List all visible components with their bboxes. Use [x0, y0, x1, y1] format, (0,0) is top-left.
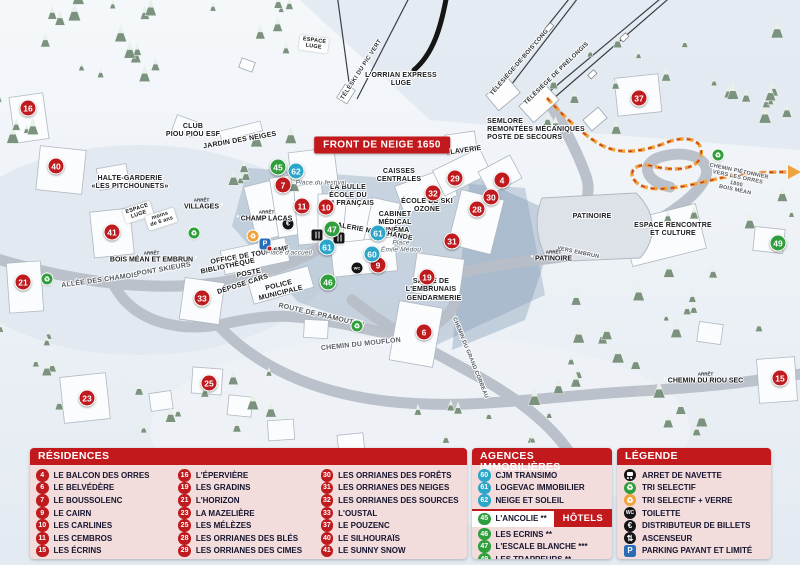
legend-key-label: ARRET DE NAVETTE [642, 471, 722, 480]
legend-item-number: 11 [36, 532, 49, 545]
map-marker-19: 19 [419, 269, 436, 286]
legend-item-number: 40 [321, 532, 334, 545]
map-label: CABINET MÉDICAL [378, 211, 411, 227]
map-marker-10: 10 [318, 199, 335, 216]
legend-item: 11LES CEMBROS [36, 532, 178, 545]
legend-item-number: 60 [478, 469, 491, 482]
legend-item: 15LES ÉCRINS [36, 545, 178, 558]
legend-key-item: ARRET DE NAVETTE [623, 469, 767, 482]
legend-item-label: LA MAZELIÈRE [196, 509, 255, 518]
legend-item-label: L'ANCOLIE ** [496, 514, 547, 523]
map-marker-15: 15 [772, 370, 789, 387]
legend-key-label: TRI SELECTIF + VERRE [642, 496, 732, 505]
map-marker-30: 30 [483, 189, 500, 206]
legend-key-item: €DISTRIBUTEUR DE BILLETS [623, 519, 767, 532]
parking-icon: P [260, 239, 271, 250]
bus-icon [624, 469, 636, 481]
legend-item: 21L'HORIZON [178, 494, 320, 507]
legend-item: 29LES ORRIANES DES CIMES [178, 545, 320, 558]
legend-item: 41LE SUNNY SNOW [321, 545, 463, 558]
legend-item: 62NEIGE ET SOLEIL [478, 494, 608, 507]
legend-item-label: LE CAIRN [54, 509, 92, 518]
map-marker-21: 21 [15, 274, 32, 291]
map-label: GENDARMERIE [407, 295, 462, 303]
toilet-icon: WC [352, 263, 363, 274]
legend-item-number: 29 [178, 545, 191, 558]
legend-item: 30LES ORRIANES DES FORÊTS [321, 469, 463, 482]
legend-item-label: LE BOUSSOLENC [54, 496, 123, 505]
legend-item: 33L'OUSTAL [321, 507, 463, 520]
map-label: Place Émile Médou [381, 240, 421, 255]
parking-icon: P [624, 545, 636, 557]
front-de-neige-banner: FRONT DE NEIGE 1650 [314, 137, 450, 154]
residences-column: 16L'ÉPERVIÈRE19LES GRADINS21L'HORIZON23L… [178, 469, 320, 557]
map-label: CAISSES CENTRALES [377, 168, 422, 184]
map-marker-60: 60 [364, 246, 381, 263]
bus-stop-name: CHAMP LACAS [241, 215, 293, 222]
legend-item-number: 21 [178, 494, 191, 507]
legend-item-label: LE POUZENC [338, 521, 390, 530]
map-marker-41: 41 [104, 224, 121, 241]
legend-item-label: LE SILHOURAÏS [338, 534, 400, 543]
residences-column: 30LES ORRIANES DES FORÊTS31LES ORRIANES … [321, 469, 463, 557]
legend-item: 6LE BELVÉDÈRE [36, 482, 178, 495]
map-marker-46: 46 [320, 274, 337, 291]
legend-item-number: 33 [321, 507, 334, 520]
legend-item: 32LES ORRIANES DES SOURCES [321, 494, 463, 507]
legend-item-number: 41 [321, 545, 334, 558]
recycle-glass-icon: ♻ [248, 231, 259, 242]
map-marker-6: 6 [416, 324, 433, 341]
bus-stop-bois-m-an-et-embrun: ARRÊTBOIS MÉAN ET EMBRUN [110, 251, 196, 263]
legend-item-number: 15 [36, 545, 49, 558]
bus-stop-name: BOIS MÉAN ET EMBRUN [110, 256, 193, 263]
panel-agences-title: AGENCES IMMOBILIÈRES [472, 448, 612, 465]
map-label: Place d'accueil [266, 249, 312, 256]
bus-stop-villages: ARRÊTVILLAGES [184, 198, 222, 210]
legend-item-number: 30 [321, 469, 334, 482]
legend-key-label: TOILETTE [642, 509, 681, 518]
legend-item-label: LES CEMBROS [54, 534, 113, 543]
legend-item-number: 46 [478, 528, 491, 541]
legend-item-number: 49 [478, 553, 491, 559]
legend-item-label: LES MÉLÈZES [196, 521, 252, 530]
legend-item-label: LES ORRIANES DES NEIGES [338, 483, 449, 492]
bus-stop-name: VILLAGES [184, 203, 219, 210]
legend-item-label: LOGEVAC IMMOBILIER [496, 483, 585, 492]
legend-item: 16L'ÉPERVIÈRE [178, 469, 320, 482]
recycle-icon: ♻ [713, 150, 724, 161]
legend-item-label: LES ORRIANES DES SOURCES [338, 496, 458, 505]
map-marker-4: 4 [494, 172, 511, 189]
legend-item-label: LE SUNNY SNOW [338, 546, 405, 555]
map-marker-37: 37 [631, 90, 648, 107]
legend-item: 49LES TRAPPEURS ** [478, 553, 608, 559]
recycle-glass-icon: ♻ [624, 494, 636, 506]
legend-item-label: LES CARLINES [54, 521, 113, 530]
legend-item-number: 32 [321, 494, 334, 507]
map-marker-61: 61 [319, 239, 336, 256]
euro-icon: € [624, 520, 636, 532]
toilet-icon: WC [624, 507, 636, 519]
legend-item: 9LE CAIRN [36, 507, 178, 520]
map-marker-7: 7 [275, 177, 292, 194]
legend-item: 10LES CARLINES [36, 519, 178, 532]
legend-item: 19LES GRADINS [178, 482, 320, 495]
legend-item-number: 10 [36, 519, 49, 532]
legend-item-number: 19 [178, 482, 191, 495]
legend-item: 7LE BOUSSOLENC [36, 494, 178, 507]
map-marker-33: 33 [194, 290, 211, 307]
recycle-icon: ♻ [42, 274, 53, 285]
panel-residences: RÉSIDENCES 4LE BALCON DES ORRES6LE BELVÉ… [30, 448, 467, 559]
map-marker-47: 47 [324, 221, 341, 238]
legend-item: 47L'ESCALE BLANCHE *** [478, 540, 608, 553]
map-marker-16: 16 [20, 100, 37, 117]
legend-item-label: LES ORRIANES DES FORÊTS [338, 471, 451, 480]
legend-item-label: L'OUSTAL [338, 509, 377, 518]
legend-key-label: DISTRIBUTEUR DE BILLETS [642, 521, 750, 530]
legend-item: 61LOGEVAC IMMOBILIER [478, 482, 608, 495]
recycle-icon: ♻ [189, 228, 200, 239]
legend-item-label: LES ÉCRINS [54, 546, 102, 555]
legend-key-item: ♻TRI SELECTIF + VERRE [623, 494, 767, 507]
legend-item: 28LES ORRIANES DES BLÉS [178, 532, 320, 545]
legend-item: 4LE BALCON DES ORRES [36, 469, 178, 482]
legend-item: 45L'ANCOLIE ** [472, 512, 554, 525]
legend-item-label: L'HORIZON [196, 496, 240, 505]
legend-item-label: LE BELVÉDÈRE [54, 483, 115, 492]
legend-item-label: L'ESCALE BLANCHE *** [496, 542, 588, 551]
panel-legende: LÉGENDE ARRET DE NAVETTE♻TRI SELECTIF♻TR… [617, 448, 771, 559]
resort-map: FRONT DE NEIGE 1650 TÉLÉSKI DU PIC VERTT… [0, 0, 800, 565]
map-marker-45: 45 [270, 159, 287, 176]
elevator-icon: ⇅ [624, 532, 636, 544]
legend-item-label: LE BALCON DES ORRES [54, 471, 150, 480]
legend-key-label: ASCENSEUR [642, 534, 692, 543]
legend-item: 37LE POUZENC [321, 519, 463, 532]
legend-item-label: CJM TRANSIMO [496, 471, 558, 480]
legend-item-number: 45 [478, 513, 491, 526]
map-marker-61: 61 [370, 225, 387, 242]
legend-item-number: 47 [478, 540, 491, 553]
map-label: CLUB PIOU PIOU ESF [166, 123, 220, 139]
legend-key-label: PARKING PAYANT ET LIMITÉ [642, 546, 752, 555]
legend-item-number: 9 [36, 507, 49, 520]
legend-key-label: TRI SELECTIF [642, 483, 696, 492]
legend-item-number: 37 [321, 519, 334, 532]
legend-item-number: 4 [36, 469, 49, 482]
restaurant-icon [312, 230, 323, 241]
legend-item: 25LES MÉLÈZES [178, 519, 320, 532]
legend-item-label: LES GRADINS [196, 483, 251, 492]
bus-stop-name: PATINOIRE [535, 255, 572, 262]
map-marker-32: 32 [425, 185, 442, 202]
legend-item-number: 6 [36, 482, 49, 495]
legend-item-number: 62 [478, 494, 491, 507]
legend-key-item: PPARKING PAYANT ET LIMITÉ [623, 545, 767, 558]
hotels-tag: HÔTELS [554, 511, 612, 527]
legend-key-item: WCTOILETTE [623, 507, 767, 520]
map-label: L'ORRIAN EXPRESS LUGE [365, 72, 437, 88]
legend-item-number: 31 [321, 482, 334, 495]
panel-residences-title: RÉSIDENCES [30, 448, 467, 465]
legend-item-number: 16 [178, 469, 191, 482]
legend-item: 40LE SILHOURAÏS [321, 532, 463, 545]
legend-key-item: ♻TRI SELECTIF [623, 482, 767, 495]
map-label: Place du festival [296, 179, 347, 186]
map-label: ESPACE RENCONTRE ET CULTURE [634, 222, 712, 238]
legend-item-label: LES TRAPPEURS ** [496, 555, 572, 559]
legend-item-label: LES ECRINS ** [496, 530, 552, 539]
residences-column: 4LE BALCON DES ORRES6LE BELVÉDÈRE7LE BOU… [36, 469, 178, 557]
legend-item-number: 61 [478, 482, 491, 495]
legend-item-number: 7 [36, 494, 49, 507]
map-marker-25: 25 [201, 375, 218, 392]
map-label: SEMLORE REMONTÉES MÉCANIQUES POSTE DE SE… [487, 118, 585, 142]
legend-item-label: LES ORRIANES DES CIMES [196, 546, 302, 555]
map-label: HALTE-GARDERIE «LES PITCHOUNETS» [92, 175, 169, 191]
legend-item-number: 25 [178, 519, 191, 532]
legend-item-label: LES ORRIANES DES BLÉS [196, 534, 298, 543]
bus-stop-champ-lacas: ARRÊTCHAMP LACAS [238, 210, 293, 222]
legend-item-label: NEIGE ET SOLEIL [496, 496, 564, 505]
map-marker-40: 40 [48, 158, 65, 175]
legend-item: 23LA MAZELIÈRE [178, 507, 320, 520]
legend-key-item: ⇅ASCENSEUR [623, 532, 767, 545]
map-marker-29: 29 [447, 170, 464, 187]
recycle-icon: ♻ [624, 482, 636, 494]
legend-item-label: L'ÉPERVIÈRE [196, 471, 248, 480]
map-marker-31: 31 [444, 233, 461, 250]
bus-stop-chemin-du-riou-sec: ARRÊTCHEMIN DU RIOU SEC [665, 372, 743, 384]
map-marker-28: 28 [469, 201, 486, 218]
legend-item: 46LES ECRINS ** [478, 528, 608, 541]
legend-item: 60CJM TRANSIMO [478, 469, 608, 482]
legend-item: 31LES ORRIANES DES NEIGES [321, 482, 463, 495]
bus-stop-patinoire: ARRÊTPATINOIRE [532, 250, 572, 262]
legend-item-number: 28 [178, 532, 191, 545]
bus-stop-name: CHEMIN DU RIOU SEC [668, 377, 743, 384]
map-marker-49: 49 [770, 235, 787, 252]
map-marker-11: 11 [294, 198, 311, 215]
legend-item-number: 23 [178, 507, 191, 520]
map-marker-23: 23 [79, 390, 96, 407]
panel-legende-title: LÉGENDE [617, 448, 771, 465]
map-label: PATINOIRE [573, 213, 612, 221]
recycle-icon: ♻ [352, 321, 363, 332]
panel-agences: AGENCES IMMOBILIÈRES 60CJM TRANSIMO61LOG… [472, 448, 612, 559]
map-marker-62: 62 [288, 163, 305, 180]
